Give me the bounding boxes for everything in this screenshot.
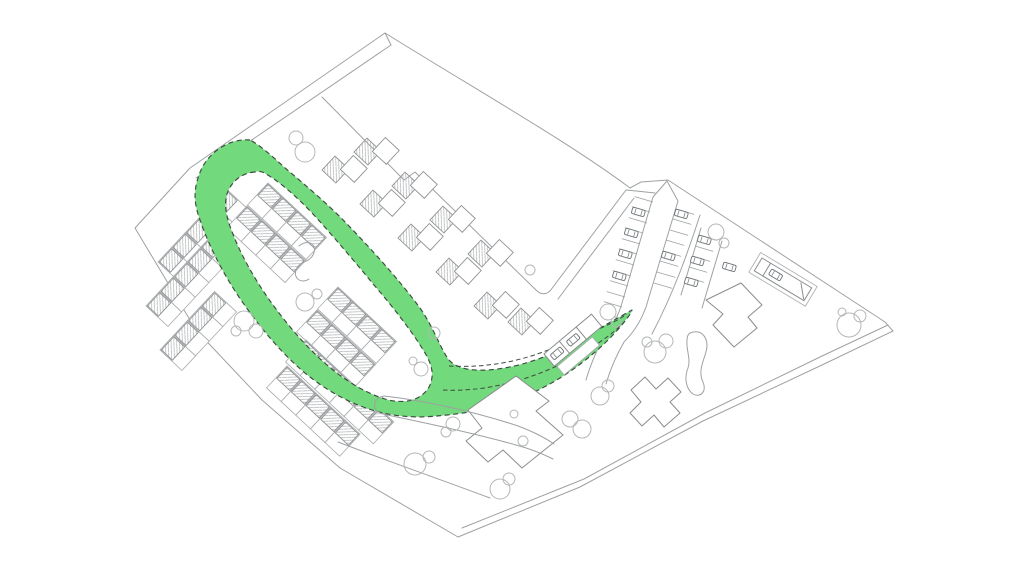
tree — [719, 238, 729, 248]
garage-block — [749, 253, 817, 307]
shrub-outline — [686, 332, 707, 396]
parking-bay — [673, 219, 691, 224]
l-shaped-building — [706, 283, 762, 347]
v-street-edge-2 — [558, 198, 634, 299]
parking-bay — [629, 218, 647, 223]
parking-bay — [657, 272, 675, 277]
tree — [562, 411, 578, 427]
tree — [423, 451, 435, 463]
tree — [602, 380, 614, 392]
tree — [409, 357, 417, 365]
tree — [295, 142, 315, 162]
car — [612, 271, 626, 281]
tree — [441, 427, 451, 437]
right-parcel-edge — [652, 215, 700, 334]
tree — [490, 479, 510, 499]
car — [624, 228, 638, 238]
car — [722, 262, 736, 272]
tree — [503, 473, 515, 485]
tree — [249, 324, 263, 338]
car — [661, 251, 675, 261]
car — [674, 209, 688, 219]
parking-bay — [666, 240, 684, 245]
tree — [312, 289, 322, 299]
parking-bay — [622, 239, 640, 244]
parking-bay — [695, 246, 713, 251]
tree — [659, 334, 673, 348]
tree — [708, 224, 724, 240]
tree — [591, 387, 609, 405]
parking-road-west-edge — [586, 181, 667, 380]
buildings — [466, 253, 817, 468]
site-plan-page — [0, 0, 1024, 573]
parking-bay — [607, 292, 625, 297]
car — [631, 207, 645, 217]
car — [684, 277, 698, 287]
parcel-curve — [338, 442, 490, 498]
parking-area — [604, 197, 737, 308]
car — [690, 256, 704, 266]
cross-plan-building — [630, 377, 681, 427]
parking-bay — [635, 197, 653, 202]
tree — [296, 293, 314, 311]
parking-bay — [610, 281, 628, 286]
tree — [573, 420, 591, 438]
parking-bay — [689, 267, 707, 272]
parking-bay — [616, 260, 634, 265]
tree — [644, 341, 666, 363]
tree — [837, 313, 861, 337]
car — [618, 249, 632, 259]
parking-bay — [654, 283, 672, 288]
parking-bay — [660, 261, 678, 266]
tree — [234, 311, 254, 331]
parking-bay — [670, 230, 688, 235]
site-plan-canvas — [0, 0, 1024, 573]
tree — [525, 265, 535, 275]
